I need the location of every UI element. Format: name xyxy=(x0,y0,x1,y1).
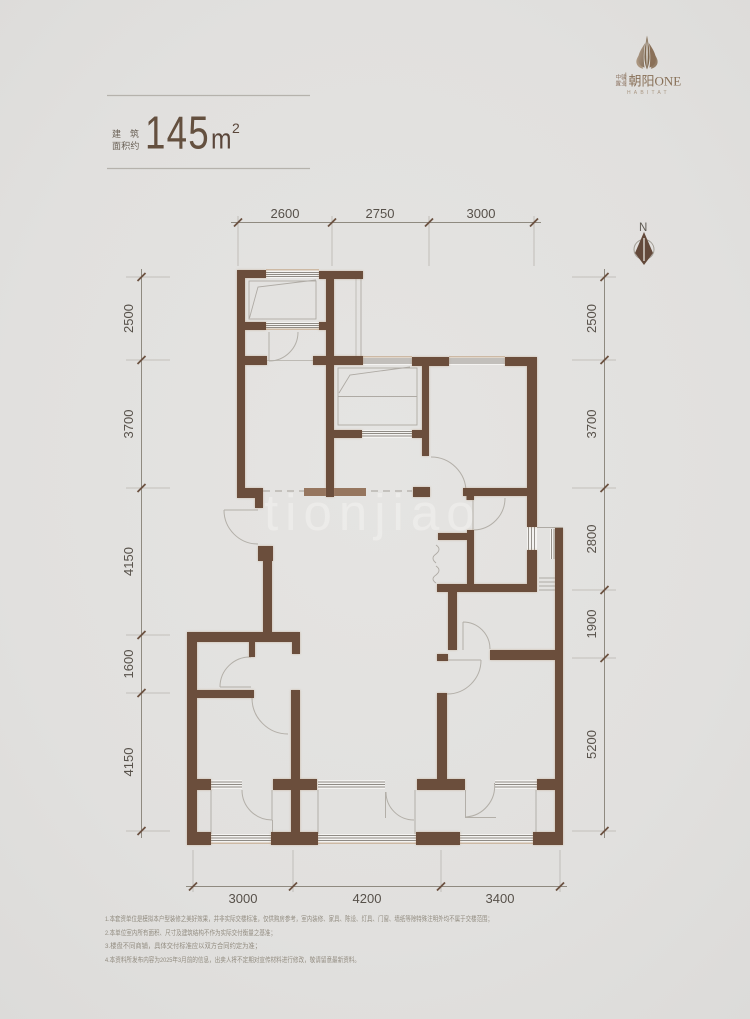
svg-text:1900: 1900 xyxy=(584,610,599,639)
svg-text:3000: 3000 xyxy=(229,891,258,906)
svg-text:4150: 4150 xyxy=(121,547,136,576)
svg-text:tionjiao: tionjiao xyxy=(264,484,482,541)
svg-text:2: 2 xyxy=(232,120,240,136)
svg-text:建筑: 建筑 xyxy=(112,128,148,139)
svg-text:m: m xyxy=(211,123,232,155)
svg-text:145: 145 xyxy=(145,106,210,158)
svg-text:1600: 1600 xyxy=(121,650,136,679)
svg-text:2750: 2750 xyxy=(366,206,395,221)
svg-text:2500: 2500 xyxy=(584,304,599,333)
svg-text:3700: 3700 xyxy=(121,410,136,439)
svg-text:HABITAT: HABITAT xyxy=(627,90,670,96)
svg-text:2.本单位室内所有面积、尺寸及建筑结构不作为实际交付衡量之基: 2.本单位室内所有面积、尺寸及建筑结构不作为实际交付衡量之基准； xyxy=(105,928,276,937)
svg-text:3.楼盘不同商铺，具体交付标准应以双方合同约定为准；: 3.楼盘不同商铺，具体交付标准应以双方合同约定为准； xyxy=(105,941,261,950)
svg-text:4150: 4150 xyxy=(121,748,136,777)
svg-text:中骏: 中骏 xyxy=(616,73,628,81)
svg-text:N: N xyxy=(639,222,647,234)
svg-text:置业: 置业 xyxy=(616,80,628,88)
svg-text:3700: 3700 xyxy=(584,410,599,439)
svg-text:2600: 2600 xyxy=(271,206,300,221)
svg-text:3000: 3000 xyxy=(467,206,496,221)
svg-text:2800: 2800 xyxy=(584,525,599,554)
svg-text:1.本套资单位是模拟本户型装修之美好效果，并非实际交楼标准，: 1.本套资单位是模拟本户型装修之美好效果，并非实际交楼标准，仅供购房参考，室内装… xyxy=(105,914,493,923)
svg-text:4200: 4200 xyxy=(353,891,382,906)
svg-text:2500: 2500 xyxy=(121,304,136,333)
svg-text:3400: 3400 xyxy=(486,891,515,906)
svg-text:5200: 5200 xyxy=(584,730,599,759)
svg-text:面积约: 面积约 xyxy=(112,140,140,151)
svg-text:4.本资料所发布内容为2025年3月前的信息，出卖人将不定期: 4.本资料所发布内容为2025年3月前的信息，出卖人将不定期对宣传材料进行修改，… xyxy=(105,955,360,964)
svg-text:朝阳ONE: 朝阳ONE xyxy=(629,74,682,89)
